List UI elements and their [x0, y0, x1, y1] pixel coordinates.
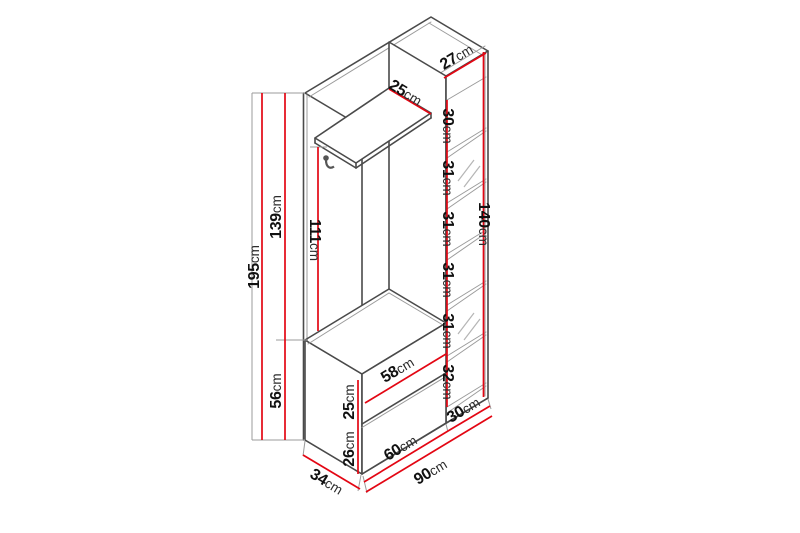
furniture-dimension-diagram: 195cm 139cm 56cm 111cm 25cm 27cm 30cm 31… — [0, 0, 800, 533]
dim-compartment-5-label: 31cm — [439, 313, 456, 348]
dim-upper-height-label: 139cm — [268, 195, 285, 239]
dim-bench-upper-height-label: 25cm — [341, 384, 358, 419]
dim-depth-label: 34cm — [307, 466, 346, 499]
dim-column-height-label: 140cm — [475, 202, 492, 246]
dim-compartment-3-label: 31cm — [439, 211, 456, 246]
wardrobe-drawing: 195cm 139cm 56cm 111cm 25cm 27cm 30cm 31… — [0, 0, 800, 533]
dim-hanging-height-label: 111cm — [306, 219, 323, 261]
dim-compartment-1-label: 30cm — [439, 108, 456, 143]
coat-hook-icon — [323, 155, 334, 168]
dim-lower-height-label: 56cm — [268, 373, 285, 408]
dim-compartment-4-label: 31cm — [439, 262, 456, 297]
dim-compartment-2-label: 31cm — [439, 160, 456, 195]
dim-bench-lower-height-label: 26cm — [341, 431, 358, 466]
dim-total-height-label: 195cm — [246, 245, 263, 289]
dim-compartment-6-label: 32cm — [439, 364, 456, 399]
